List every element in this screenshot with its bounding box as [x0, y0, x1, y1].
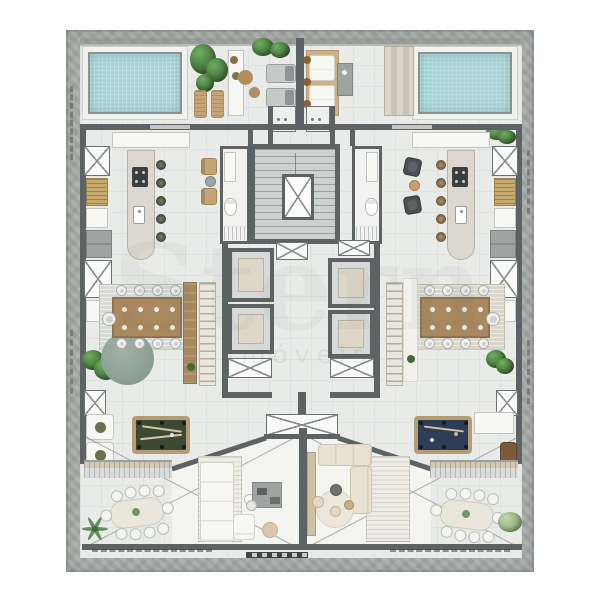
bar-stool — [156, 160, 166, 170]
swimming-pool-right — [418, 52, 512, 114]
dining-chair — [478, 285, 489, 296]
dining-chair — [134, 338, 145, 349]
wood-slat-divider — [183, 282, 197, 384]
core-bottom-wall-right — [330, 392, 380, 398]
sectional-sofa-white — [200, 462, 234, 542]
elevator-shaft — [228, 304, 274, 354]
bar-stool — [436, 160, 446, 170]
side-table-icon — [409, 180, 420, 191]
terrace-divider-wall — [296, 38, 304, 130]
billiards-table-green — [132, 416, 190, 454]
pot-icon — [230, 56, 238, 64]
planter-icon — [270, 42, 290, 58]
entry-wall-stub — [350, 128, 355, 146]
dining-chair — [460, 285, 471, 296]
dimension-ticks-right-mid — [527, 340, 530, 404]
vanity — [224, 152, 236, 182]
wall-cabinet — [494, 208, 516, 228]
cooktop-icon — [132, 167, 148, 187]
kitchen-counter — [112, 132, 190, 148]
outdoor-dining-set-right — [427, 482, 505, 546]
vent-shaft-icon — [276, 242, 308, 260]
cup-icon — [342, 70, 347, 75]
sink-icon — [455, 206, 467, 224]
vent-shaft-icon — [330, 358, 374, 378]
dining-table-left — [112, 297, 182, 338]
armchair-white — [86, 414, 114, 440]
lounge-chair-dark — [403, 195, 423, 216]
vent-shaft-icon — [84, 146, 110, 176]
ladder-shelf — [386, 282, 403, 386]
dimension-ticks-left-top — [70, 86, 73, 160]
side-table-tan-icon — [344, 500, 354, 510]
living-rug-right — [366, 456, 410, 542]
terrace-posts-right — [390, 549, 510, 552]
elevator-shaft — [328, 310, 374, 358]
dining-chair — [116, 285, 127, 296]
bar-stool — [156, 232, 166, 242]
side-table-dark-icon — [330, 484, 342, 496]
lounge-chair-gray — [266, 88, 296, 107]
dining-chair — [134, 285, 145, 296]
sun-lounger-white — [309, 55, 335, 81]
dining-chair — [442, 338, 453, 349]
wall-cabinet — [86, 208, 108, 228]
pillow-icon — [303, 56, 311, 64]
bar-stool — [156, 214, 166, 224]
terrace-posts-left — [92, 549, 212, 552]
dining-chair — [116, 338, 127, 349]
palm-plant-icon — [82, 516, 108, 542]
appliance-stack — [490, 230, 516, 258]
billiards-table-blue — [414, 416, 472, 454]
shower-strip — [224, 226, 246, 240]
floor-plan-canvas: Stern imóveis — [0, 0, 600, 600]
elevator-shaft — [228, 248, 274, 302]
vent-shaft-icon — [84, 390, 106, 416]
scale-bar — [246, 552, 308, 558]
pouf-icon — [312, 496, 324, 508]
dining-chair — [424, 338, 435, 349]
core-wall-right — [374, 242, 380, 394]
floor-plant-icon — [496, 358, 514, 374]
vanity — [366, 152, 378, 182]
dining-chair — [424, 285, 435, 296]
window-strip — [392, 125, 432, 129]
ottoman-icon — [249, 87, 260, 98]
cooktop-icon — [452, 167, 468, 187]
appliance-stack — [86, 230, 112, 258]
window-strip — [150, 125, 190, 129]
accent-chair-tan — [201, 188, 217, 205]
dimension-ticks-right-top — [527, 150, 530, 214]
sectional-sofa-beige — [318, 444, 372, 466]
white-sideboard — [403, 278, 418, 382]
dining-chair — [442, 285, 453, 296]
vent-shaft-icon — [228, 358, 272, 378]
planter-icon — [498, 130, 516, 144]
bar-stool — [436, 214, 446, 224]
stepped-deck — [384, 46, 414, 116]
dimension-ticks-left-mid — [70, 330, 73, 394]
dining-table-right — [420, 297, 490, 338]
center-divider-wall — [299, 428, 307, 550]
core-bottom-wall-left — [222, 392, 272, 398]
ottoman-tan — [262, 522, 278, 538]
vent-shaft-icon — [492, 146, 518, 176]
pergola-band-left — [84, 460, 172, 478]
outdoor-dining-set-left — [97, 480, 175, 544]
ottoman-icon — [238, 70, 253, 85]
dining-chair — [170, 285, 181, 296]
pergola-band-right — [430, 460, 518, 478]
dining-chair — [152, 285, 163, 296]
sink-icon — [133, 206, 145, 224]
wood-slat-cabinet — [86, 178, 108, 206]
sofa-foot-section — [233, 514, 255, 540]
toilet-icon — [365, 198, 378, 216]
round-green-rug — [101, 332, 154, 385]
tan-door-panel — [307, 452, 316, 536]
dining-chair — [152, 338, 163, 349]
accent-chair-tan — [201, 158, 217, 175]
bar-stool — [156, 178, 166, 188]
elevator-shaft — [328, 258, 374, 308]
shower-strip — [356, 226, 378, 240]
elevator-cab — [282, 174, 314, 220]
sun-lounger-tan — [211, 90, 224, 118]
top-wall — [82, 124, 522, 130]
bar-stool — [436, 178, 446, 188]
kitchen-counter — [412, 132, 490, 148]
pouf-icon — [330, 506, 341, 517]
dining-chair — [170, 338, 181, 349]
ladder-shelf — [199, 282, 216, 386]
living-top-wall-left — [264, 434, 300, 439]
soft-plant-icon — [498, 512, 522, 532]
toilet-icon — [224, 198, 237, 216]
sun-lounger-tan — [194, 90, 207, 118]
living-top-wall-right — [304, 434, 340, 439]
lounge-chair-gray — [266, 64, 296, 83]
bar-stool — [156, 196, 166, 206]
concrete-side-table — [337, 63, 353, 96]
dining-chair-end — [102, 312, 116, 326]
dining-chair-end — [486, 312, 500, 326]
swimming-pool-left — [88, 52, 182, 114]
bar-stool — [436, 232, 446, 242]
dining-chair — [478, 338, 489, 349]
bar-stool — [436, 196, 446, 206]
bench-white — [474, 412, 514, 434]
side-table-icon — [205, 176, 216, 187]
dining-chair — [460, 338, 471, 349]
wood-slat-cabinet — [494, 178, 516, 206]
vent-shaft-icon — [338, 240, 370, 256]
desk-chair-icon — [246, 500, 257, 511]
